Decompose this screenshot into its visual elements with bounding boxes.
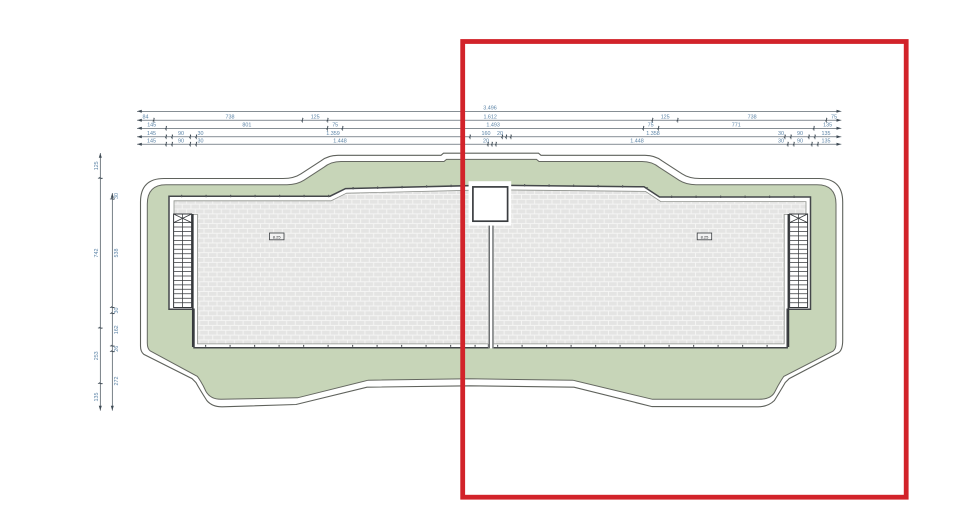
svg-text:135: 135	[94, 393, 100, 402]
svg-text:30: 30	[778, 138, 784, 144]
svg-text:1.448: 1.448	[333, 138, 347, 144]
svg-text:30: 30	[198, 138, 204, 144]
svg-text:771: 771	[732, 123, 741, 129]
svg-text:26: 26	[114, 346, 120, 352]
svg-text:90: 90	[797, 138, 803, 144]
svg-text:738: 738	[748, 114, 757, 120]
svg-text:145: 145	[147, 123, 156, 129]
svg-text:8.25: 8.25	[701, 234, 710, 239]
svg-text:162: 162	[114, 325, 120, 334]
svg-text:1.358: 1.358	[646, 131, 660, 137]
svg-text:75: 75	[332, 123, 338, 129]
svg-text:8.25: 8.25	[273, 234, 282, 239]
svg-text:135: 135	[822, 138, 831, 144]
svg-text:125: 125	[661, 114, 670, 120]
svg-text:30: 30	[114, 193, 120, 199]
svg-text:1.612: 1.612	[483, 114, 497, 120]
svg-text:135: 135	[823, 123, 832, 129]
svg-text:1.448: 1.448	[630, 138, 644, 144]
svg-text:1.493: 1.493	[486, 123, 500, 129]
svg-text:125: 125	[94, 161, 100, 170]
svg-text:20: 20	[483, 138, 489, 144]
svg-text:801: 801	[242, 123, 251, 129]
svg-text:75: 75	[831, 114, 837, 120]
svg-text:30: 30	[114, 308, 120, 314]
svg-text:30: 30	[198, 131, 204, 137]
svg-text:160: 160	[482, 131, 491, 137]
svg-text:20: 20	[497, 131, 503, 137]
svg-text:125: 125	[311, 114, 320, 120]
svg-text:135: 135	[822, 131, 831, 137]
svg-text:90: 90	[797, 131, 803, 137]
svg-text:742: 742	[94, 249, 100, 258]
svg-text:272: 272	[114, 377, 120, 386]
svg-text:145: 145	[147, 131, 156, 137]
svg-text:84: 84	[143, 114, 149, 120]
svg-text:30: 30	[778, 131, 784, 137]
svg-text:90: 90	[178, 138, 184, 144]
svg-text:253: 253	[94, 351, 100, 360]
svg-text:145: 145	[147, 138, 156, 144]
svg-text:738: 738	[226, 114, 235, 120]
svg-text:1.359: 1.359	[326, 131, 340, 137]
svg-text:3.496: 3.496	[483, 106, 497, 112]
svg-text:538: 538	[114, 249, 120, 258]
svg-text:90: 90	[178, 131, 184, 137]
svg-text:75: 75	[648, 123, 654, 129]
